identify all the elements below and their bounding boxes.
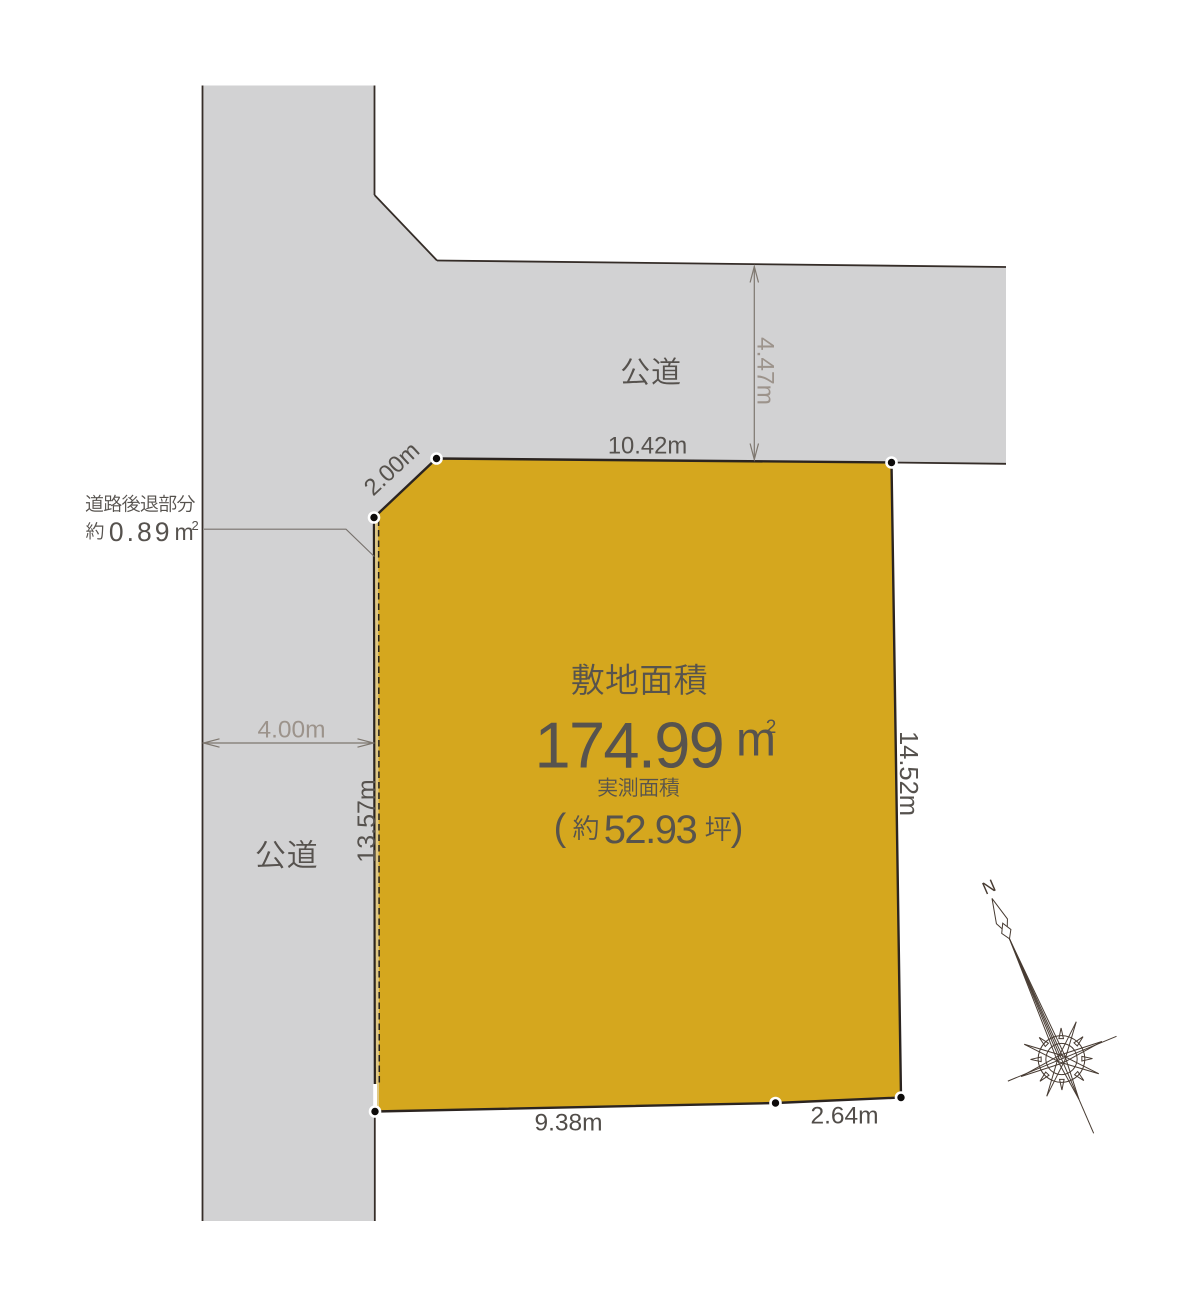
svg-text:52.93: 52.93 xyxy=(604,808,697,852)
svg-text:2.64m: 2.64m xyxy=(810,1103,878,1130)
svg-text:4.00m: 4.00m xyxy=(257,717,325,744)
svg-text:(: ( xyxy=(554,807,567,849)
svg-text:): ) xyxy=(731,807,744,849)
svg-text:14.52m: 14.52m xyxy=(894,731,922,816)
svg-text:2: 2 xyxy=(192,518,199,533)
svg-text:0.89: 0.89 xyxy=(109,517,173,547)
svg-text:2: 2 xyxy=(766,717,777,738)
svg-text:4.47m: 4.47m xyxy=(752,337,779,405)
svg-text:9.38m: 9.38m xyxy=(534,1110,602,1137)
svg-text:10.42m: 10.42m xyxy=(608,433,687,460)
svg-text:174.99: 174.99 xyxy=(535,708,724,781)
svg-text:13.57m: 13.57m xyxy=(353,779,381,862)
